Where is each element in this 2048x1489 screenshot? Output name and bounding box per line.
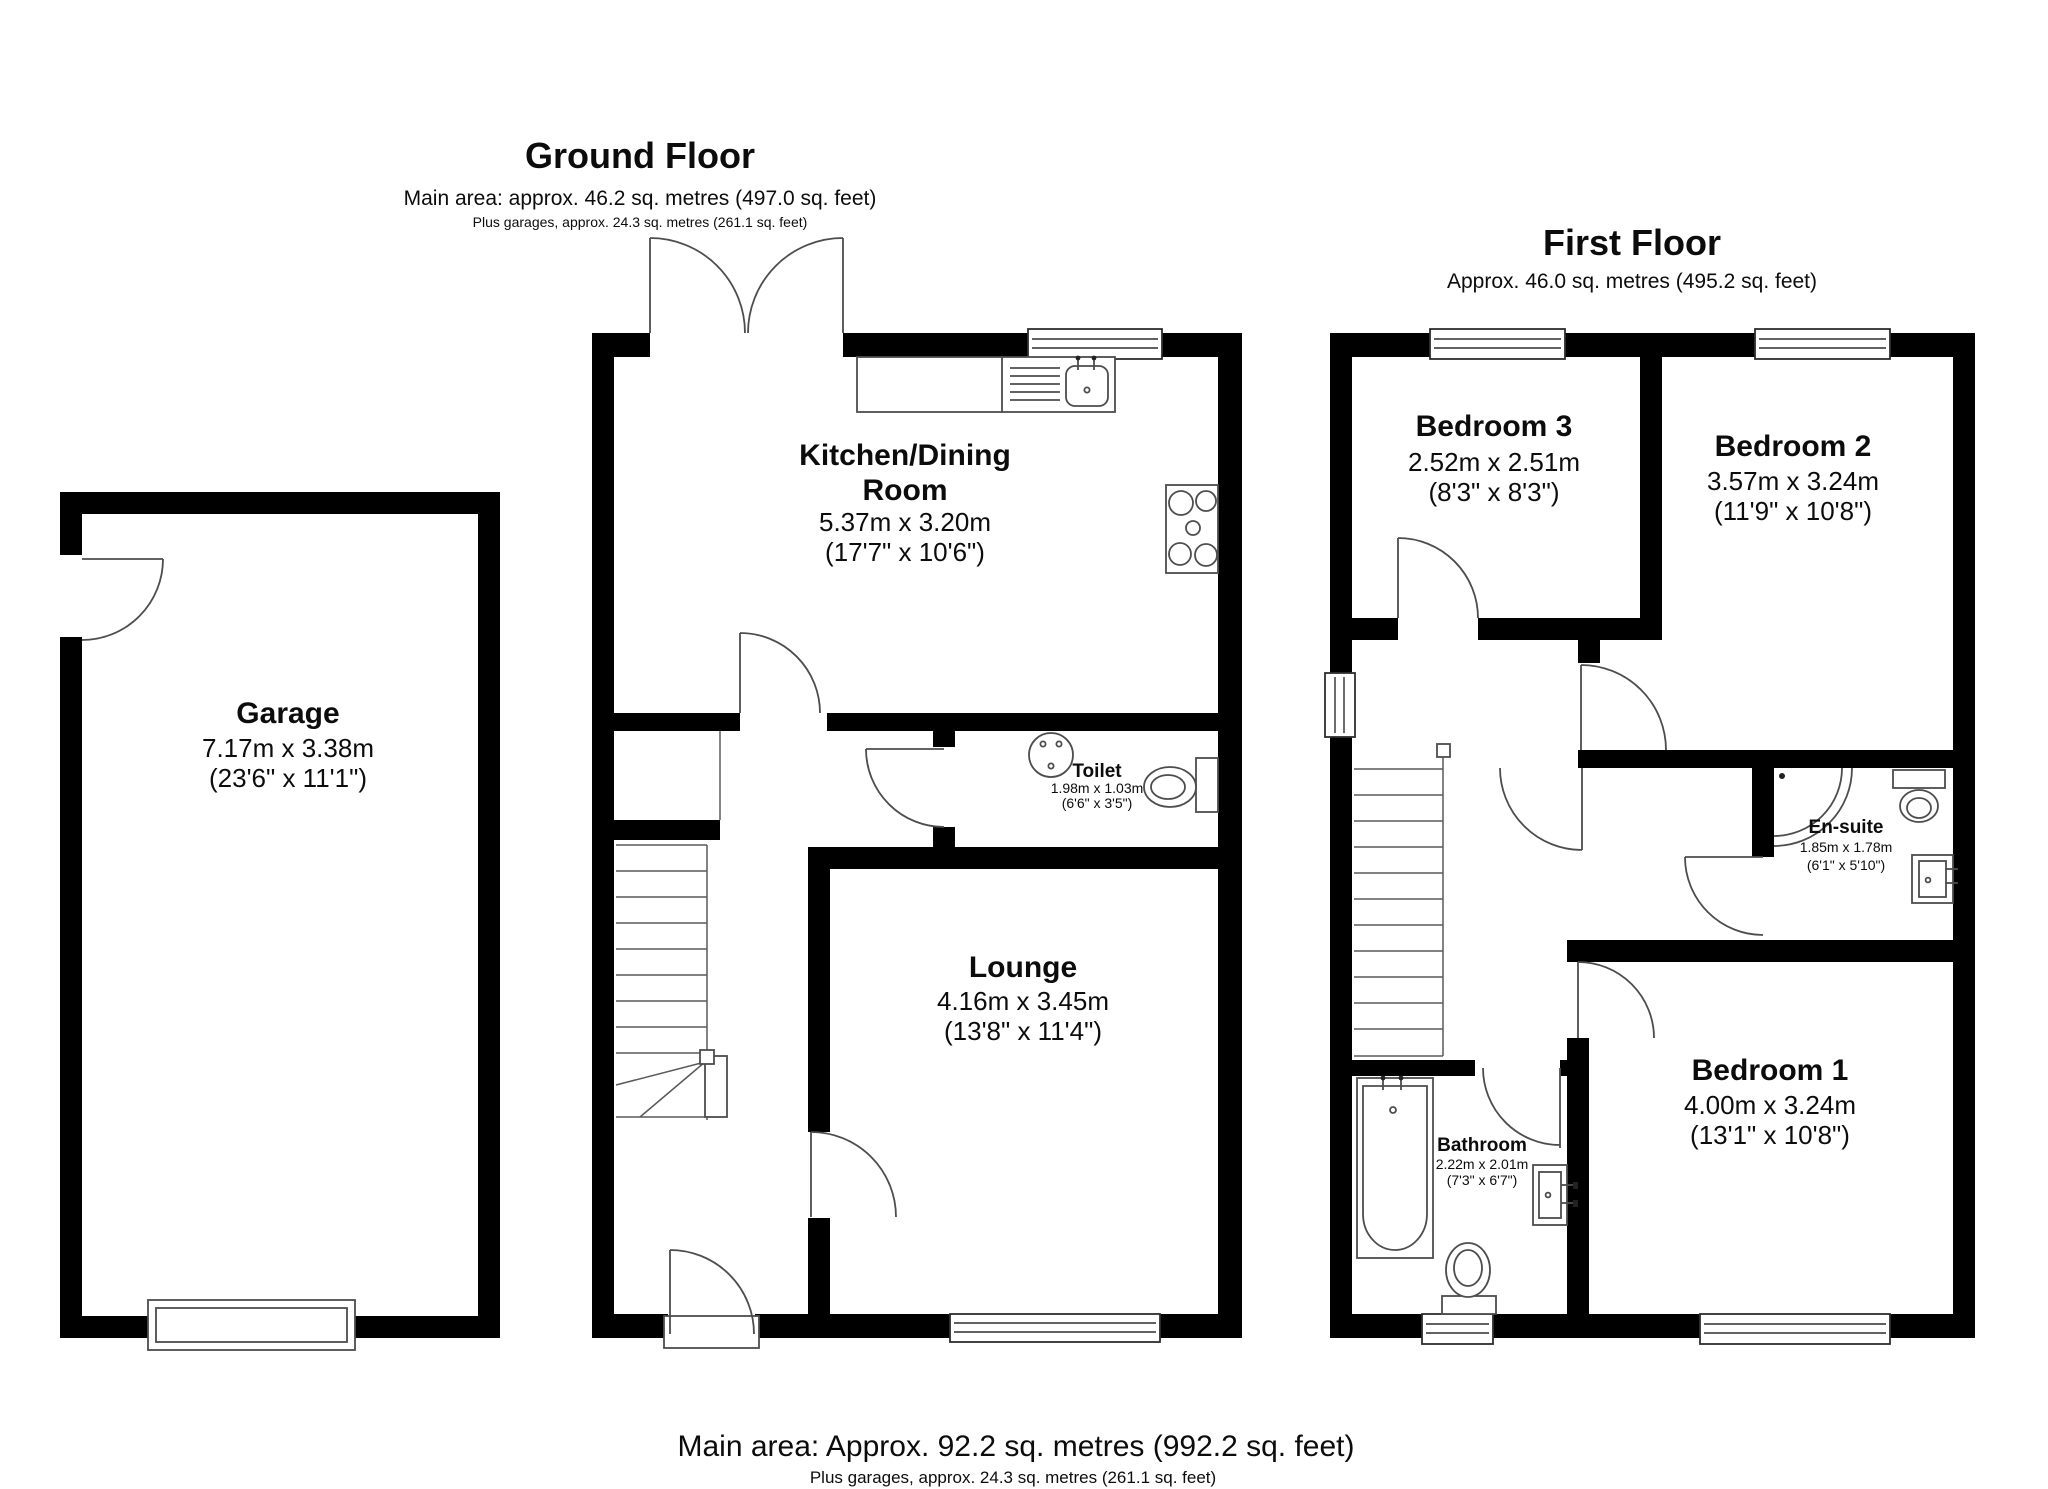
bathroom-wc-icon xyxy=(1442,1243,1496,1314)
bedroom2-dim-imperial: (11'9" x 10'8") xyxy=(1714,496,1872,526)
bedroom2-name: Bedroom 2 xyxy=(1715,430,1872,463)
bedroom2-label: Bedroom 2 3.57m x 3.24m (11'9" x 10'8") xyxy=(1707,430,1879,526)
ground-floor-title-block: Ground Floor Main area: approx. 46.2 sq.… xyxy=(404,135,877,230)
first-floor-title: First Floor xyxy=(1543,222,1721,263)
lounge-dim-metric: 4.16m x 3.45m xyxy=(937,986,1109,1016)
garage-name: Garage xyxy=(236,697,339,730)
toilet-dim-imperial: (6'6" x 3'5") xyxy=(1062,795,1133,811)
french-doors xyxy=(650,238,843,358)
bedroom3-door xyxy=(1398,538,1478,618)
bedroom1-name: Bedroom 1 xyxy=(1692,1054,1849,1087)
bathroom-dim-imperial: (7'3" x 6'7") xyxy=(1447,1172,1518,1188)
kitchen-dining-label: Kitchen/Dining Room 5.37m x 3.20m (17'7"… xyxy=(799,439,1011,567)
footer-main-area: Main area: Approx. 92.2 sq. metres (992.… xyxy=(677,1430,1354,1463)
kitchen-door xyxy=(740,633,820,713)
ensuite-label: En-suite 1.85m x 1.78m (6'1" x 5'10") xyxy=(1800,817,1893,873)
lounge-name: Lounge xyxy=(969,951,1077,984)
garage-side-door xyxy=(59,555,163,640)
bedroom3-window xyxy=(1430,329,1565,359)
ensuite-door xyxy=(1685,857,1763,935)
kitchen-dim-metric: 5.37m x 3.20m xyxy=(819,507,991,537)
ensuite-name: En-suite xyxy=(1809,817,1884,838)
toilet-name: Toilet xyxy=(1072,761,1122,782)
kitchen-name-line1: Kitchen/Dining xyxy=(799,439,1011,472)
ground-floor-plan: Kitchen/Dining Room 5.37m x 3.20m (17'7"… xyxy=(592,238,1242,1348)
footer-garage-area: Plus garages, approx. 24.3 sq. metres (2… xyxy=(810,1468,1216,1487)
floorplan-canvas: Ground Floor Main area: approx. 46.2 sq.… xyxy=(0,0,2048,1489)
bedroom1-label: Bedroom 1 4.00m x 3.24m (13'1" x 10'8") xyxy=(1684,1054,1856,1150)
lounge-label: Lounge 4.16m x 3.45m (13'8" x 11'4") xyxy=(937,951,1109,1046)
stairs-first-floor xyxy=(1354,744,1450,1056)
kitchen-counter xyxy=(857,356,1115,412)
bedroom3-dim-metric: 2.52m x 2.51m xyxy=(1408,447,1580,477)
bedroom1-dim-metric: 4.00m x 3.24m xyxy=(1684,1090,1856,1120)
bedroom1-door xyxy=(1578,962,1654,1038)
ensuite-dim-metric: 1.85m x 1.78m xyxy=(1800,839,1893,855)
bedroom3-label: Bedroom 3 2.52m x 2.51m (8'3" x 8'3") xyxy=(1408,410,1580,507)
garage-dim-imperial: (23'6" x 11'1") xyxy=(209,763,367,793)
first-floor-area-line: Approx. 46.0 sq. metres (495.2 sq. feet) xyxy=(1447,270,1817,293)
kitchen-name-line2: Room xyxy=(863,474,948,507)
bathroom-label: Bathroom 2.22m x 2.01m (7'3" x 6'7") xyxy=(1436,1135,1529,1188)
footer: Main area: Approx. 92.2 sq. metres (992.… xyxy=(677,1430,1354,1487)
floorplan-page: Ground Floor Main area: approx. 46.2 sq.… xyxy=(0,0,2048,1489)
lounge-door xyxy=(811,1132,896,1217)
bedroom2-door xyxy=(1581,665,1666,750)
toilet-dim-metric: 1.98m x 1.03m xyxy=(1051,780,1144,796)
garage-label: Garage 7.17m x 3.38m (23'6" x 11'1") xyxy=(202,697,374,793)
toilet-basin-icon xyxy=(1029,733,1073,777)
hob-icon xyxy=(1166,485,1218,573)
ensuite-wc-icon xyxy=(1893,770,1945,822)
ground-floor-area-line: Main area: approx. 46.2 sq. metres (497.… xyxy=(404,187,877,210)
garage-dim-metric: 7.17m x 3.38m xyxy=(202,733,374,763)
bathroom-dim-metric: 2.22m x 2.01m xyxy=(1436,1156,1529,1172)
bath-icon xyxy=(1357,1076,1433,1258)
front-door xyxy=(664,1250,759,1348)
ensuite-sink-icon xyxy=(1912,855,1958,903)
bedroom3-dim-imperial: (8'3" x 8'3") xyxy=(1429,477,1560,507)
bedroom1-dim-imperial: (13'1" x 10'8") xyxy=(1690,1120,1850,1150)
bathroom-window xyxy=(1422,1314,1493,1344)
bedroom2-window xyxy=(1755,329,1890,359)
bedroom1-window xyxy=(1700,1314,1890,1344)
ground-floor-garage-line: Plus garages, approx. 24.3 sq. metres (2… xyxy=(473,214,808,230)
stairs-ground-floor xyxy=(616,731,727,1120)
landing-window xyxy=(1325,673,1355,737)
garage-door xyxy=(148,1300,355,1350)
ground-floor-title: Ground Floor xyxy=(525,135,755,176)
landing-door xyxy=(1500,768,1582,850)
garage-walls xyxy=(60,492,500,1338)
bedroom3-name: Bedroom 3 xyxy=(1416,410,1573,443)
first-floor-title-block: First Floor Approx. 46.0 sq. metres (495… xyxy=(1447,222,1817,293)
lounge-window xyxy=(950,1314,1160,1342)
bedroom2-dim-metric: 3.57m x 3.24m xyxy=(1707,466,1879,496)
toilet-door xyxy=(866,749,944,827)
ensuite-dim-imperial: (6'1" x 5'10") xyxy=(1807,857,1885,873)
kitchen-window xyxy=(1028,329,1162,359)
kitchen-dim-imperial: (17'7" x 10'6") xyxy=(825,537,985,567)
lounge-dim-imperial: (13'8" x 11'4") xyxy=(944,1016,1102,1046)
first-floor-plan: Bedroom 3 2.52m x 2.51m (8'3" x 8'3") Be… xyxy=(1325,329,1975,1344)
garage-plan: Garage 7.17m x 3.38m (23'6" x 11'1") xyxy=(59,492,500,1350)
bathroom-name: Bathroom xyxy=(1437,1135,1527,1156)
toilet-wc-icon xyxy=(1144,758,1218,812)
